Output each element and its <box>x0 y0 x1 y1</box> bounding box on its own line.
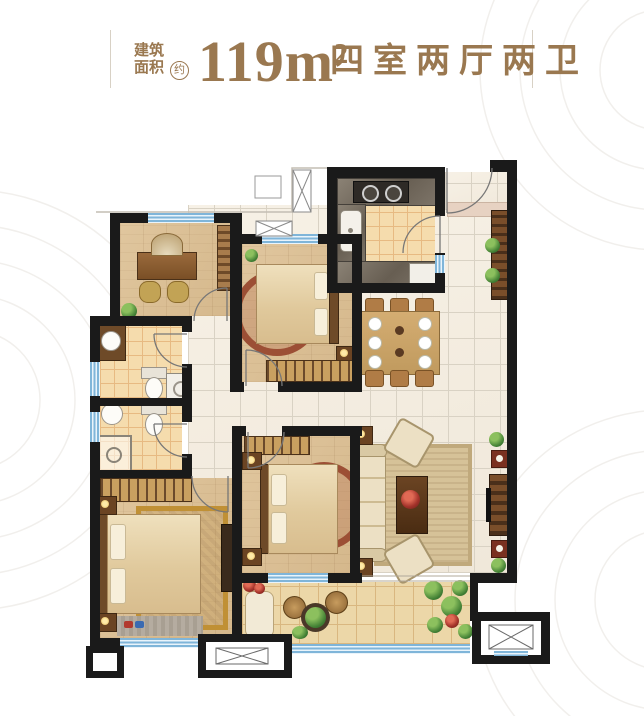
header-divider-left <box>110 30 111 88</box>
wall <box>327 167 445 178</box>
potted-plant <box>489 432 504 447</box>
side-stand <box>491 450 508 468</box>
slippers <box>135 621 144 628</box>
window <box>435 255 445 273</box>
area-value: 119m2 <box>198 26 349 91</box>
vanity-basin <box>101 331 121 351</box>
window <box>268 573 328 583</box>
bedroom-north-bed <box>256 264 338 344</box>
balcony-garden-plant <box>427 617 443 633</box>
window <box>90 362 100 396</box>
kitchen-fridge <box>409 263 436 284</box>
wall <box>90 470 192 478</box>
window <box>90 412 100 442</box>
side-stand <box>491 540 508 558</box>
dining-chair <box>415 370 434 387</box>
wall <box>90 398 192 406</box>
bathroom-2-toilet <box>141 403 166 436</box>
wall <box>278 382 362 392</box>
area-label: 建筑 面积 <box>132 43 166 77</box>
potted-plant <box>491 558 506 573</box>
kitchen-stove <box>353 181 409 203</box>
floorplan-page: 建筑 面积 约 119m2 四室两厅两卫 <box>0 0 644 716</box>
balcony-garden-flowers <box>445 614 459 628</box>
balcony-lounge-chair <box>245 591 274 638</box>
tv-cabinet <box>489 474 508 536</box>
coffee-table-flowers <box>401 490 420 509</box>
ac-platform-box <box>86 646 124 678</box>
potted-plant <box>485 238 500 253</box>
bed-pillow <box>314 272 328 300</box>
wall <box>110 213 120 326</box>
dining-table <box>360 311 440 375</box>
plate <box>418 317 432 331</box>
approx-badge: 约 <box>170 61 189 80</box>
shower-stall <box>95 435 132 474</box>
plate <box>368 355 382 369</box>
master-bed <box>98 514 200 612</box>
wall <box>232 426 246 436</box>
toilet-bowl <box>145 377 163 400</box>
wall <box>90 316 192 326</box>
lamp <box>247 456 255 464</box>
window <box>120 638 198 648</box>
balcony-garden-plant <box>424 581 443 600</box>
wall <box>507 160 517 583</box>
wall <box>352 234 362 392</box>
bed-pillow <box>110 524 126 560</box>
wall <box>327 167 337 293</box>
bedroom-north-wardrobe <box>266 360 354 382</box>
study-guest-chair <box>167 281 189 303</box>
table-centerpiece <box>395 348 404 357</box>
area-label-line1: 建筑 <box>132 43 166 60</box>
window <box>148 213 214 223</box>
window <box>494 651 528 656</box>
window <box>262 234 318 244</box>
bed-pillow <box>271 474 287 506</box>
area-label-line2: 面积 <box>132 60 166 77</box>
balcony-garden-plant <box>452 580 468 596</box>
wall <box>435 167 445 216</box>
study-desk <box>137 252 197 280</box>
plate <box>368 336 382 350</box>
duct-shaft <box>255 176 281 198</box>
wall <box>182 364 192 422</box>
plate <box>368 317 382 331</box>
stove-burner <box>385 185 402 202</box>
lamp <box>247 552 255 560</box>
lamp <box>101 617 109 625</box>
potted-plant <box>292 626 308 639</box>
dining-chair <box>365 370 384 387</box>
wall <box>182 316 192 332</box>
lamp <box>101 500 109 508</box>
lamp <box>340 349 348 357</box>
wall <box>350 426 360 583</box>
wall <box>90 470 100 648</box>
wall <box>230 213 242 392</box>
balcony-table-plant <box>305 607 326 628</box>
ac-platform-box <box>198 634 292 678</box>
potted-plant <box>485 268 500 283</box>
bed-pillow <box>271 512 287 544</box>
sink-drain <box>348 228 353 233</box>
wall <box>327 283 445 293</box>
plate <box>418 336 432 350</box>
bathroom-2-sink <box>101 403 123 425</box>
study-guest-chair <box>139 281 161 303</box>
dining-chair <box>390 370 409 387</box>
slippers <box>124 621 133 628</box>
study-desk-chair <box>151 233 183 256</box>
tv-screen <box>486 488 491 522</box>
decor <box>496 545 503 552</box>
potted-plant <box>245 249 258 262</box>
layout-text: 四室两厅两卫 <box>330 42 588 82</box>
wall <box>232 382 244 392</box>
stove-burner <box>362 185 379 202</box>
ac-platform-box <box>472 612 550 664</box>
shower-drain <box>106 447 122 463</box>
balcony-railing-window <box>290 644 470 654</box>
bed-pillow <box>314 308 328 336</box>
area-number: 119m <box>198 29 334 94</box>
table-centerpiece <box>395 326 404 335</box>
toilet-bowl <box>145 413 163 436</box>
wall <box>232 426 242 648</box>
balcony-garden-plant <box>458 624 473 639</box>
decor <box>496 455 503 462</box>
bed-pillow <box>110 568 126 604</box>
bathroom-1-toilet <box>141 367 166 400</box>
plate <box>418 355 432 369</box>
bedroom-south-bed <box>242 464 336 552</box>
flower-box <box>254 583 265 594</box>
